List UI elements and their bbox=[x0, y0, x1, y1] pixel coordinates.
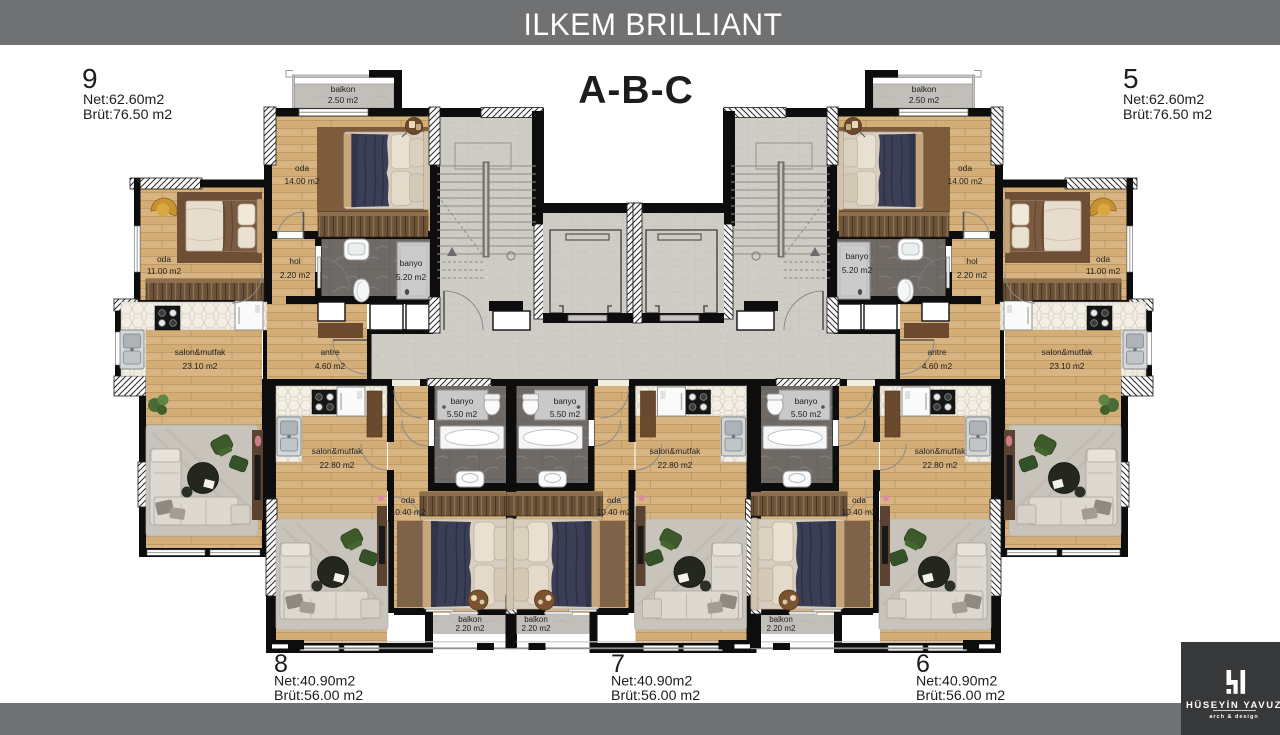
svg-text:oda: oda bbox=[1096, 254, 1110, 264]
svg-text:22.80 m2: 22.80 m2 bbox=[658, 460, 693, 470]
svg-text:balkon: balkon bbox=[524, 615, 548, 624]
svg-text:2.50 m2: 2.50 m2 bbox=[328, 95, 359, 105]
svg-text:Brüt:56.00 m2: Brüt:56.00 m2 bbox=[611, 688, 700, 704]
svg-text:antre: antre bbox=[927, 347, 946, 357]
svg-text:A-B-C: A-B-C bbox=[578, 69, 693, 112]
svg-text:2.20 m2: 2.20 m2 bbox=[456, 624, 485, 633]
svg-text:10.40 m2: 10.40 m2 bbox=[391, 507, 426, 517]
svg-text:balkon: balkon bbox=[458, 615, 482, 624]
svg-text:HÜSEYİN YAVUZ: HÜSEYİN YAVUZ bbox=[1186, 700, 1280, 711]
svg-text:oda: oda bbox=[607, 495, 621, 505]
svg-text:oda: oda bbox=[852, 495, 866, 505]
svg-text:Brüt:56.00 m2: Brüt:56.00 m2 bbox=[274, 688, 363, 704]
svg-text:hol: hol bbox=[966, 256, 977, 266]
svg-text:2.50 m2: 2.50 m2 bbox=[909, 95, 940, 105]
svg-text:hol: hol bbox=[289, 256, 300, 266]
svg-text:salon&mutfak: salon&mutfak bbox=[312, 446, 364, 456]
svg-text:Brüt:76.50 m2: Brüt:76.50 m2 bbox=[1123, 107, 1212, 123]
svg-text:23.10 m2: 23.10 m2 bbox=[1050, 361, 1085, 371]
svg-text:balkon: balkon bbox=[912, 84, 937, 94]
svg-text:banyo: banyo bbox=[554, 396, 577, 406]
svg-text:oda: oda bbox=[157, 254, 171, 264]
svg-text:banyo: banyo bbox=[451, 396, 474, 406]
svg-text:ILKEM BRILLIANT: ILKEM BRILLIANT bbox=[523, 6, 782, 42]
svg-text:2.20 m2: 2.20 m2 bbox=[957, 270, 988, 280]
svg-text:banyo: banyo bbox=[846, 251, 869, 261]
svg-text:5.50 m2: 5.50 m2 bbox=[550, 409, 581, 419]
svg-text:23.10 m2: 23.10 m2 bbox=[183, 361, 218, 371]
svg-text:banyo: banyo bbox=[400, 258, 423, 268]
svg-text:11.00 m2: 11.00 m2 bbox=[147, 266, 182, 276]
svg-text:5: 5 bbox=[1123, 63, 1139, 94]
svg-text:balkon: balkon bbox=[331, 84, 356, 94]
svg-text:4.60 m2: 4.60 m2 bbox=[315, 361, 346, 371]
svg-text:oda: oda bbox=[958, 163, 972, 173]
svg-text:salon&mutfak: salon&mutfak bbox=[915, 446, 967, 456]
svg-text:5.20 m2: 5.20 m2 bbox=[396, 272, 427, 282]
svg-text:10.40 m2: 10.40 m2 bbox=[597, 507, 632, 517]
svg-text:banyo: banyo bbox=[795, 396, 818, 406]
svg-text:5.20 m2: 5.20 m2 bbox=[842, 265, 873, 275]
svg-text:22.80 m2: 22.80 m2 bbox=[923, 460, 958, 470]
svg-text:Brüt:76.50 m2: Brüt:76.50 m2 bbox=[83, 107, 172, 123]
svg-text:salon&mutfak: salon&mutfak bbox=[650, 446, 702, 456]
svg-text:2.20 m2: 2.20 m2 bbox=[522, 624, 551, 633]
svg-text:10.40 m2: 10.40 m2 bbox=[842, 507, 877, 517]
svg-text:Net:62.60m2: Net:62.60m2 bbox=[83, 92, 164, 108]
svg-text:balkon: balkon bbox=[769, 615, 793, 624]
svg-text:oda: oda bbox=[401, 495, 415, 505]
svg-text:14.00 m2: 14.00 m2 bbox=[948, 176, 983, 186]
svg-text:Brüt:56.00 m2: Brüt:56.00 m2 bbox=[916, 688, 1005, 704]
svg-text:oda: oda bbox=[295, 163, 309, 173]
svg-text:9: 9 bbox=[82, 63, 98, 94]
svg-text:Net:62.60m2: Net:62.60m2 bbox=[1123, 92, 1204, 108]
svg-text:22.80 m2: 22.80 m2 bbox=[320, 460, 355, 470]
svg-text:2.20 m2: 2.20 m2 bbox=[280, 270, 311, 280]
svg-text:antre: antre bbox=[320, 347, 339, 357]
svg-text:11.00 m2: 11.00 m2 bbox=[1086, 266, 1121, 276]
svg-text:salon&mutfak: salon&mutfak bbox=[1042, 347, 1094, 357]
svg-text:2.20 m2: 2.20 m2 bbox=[767, 624, 796, 633]
svg-text:5.50 m2: 5.50 m2 bbox=[447, 409, 478, 419]
svg-text:4.60 m2: 4.60 m2 bbox=[922, 361, 953, 371]
svg-text:salon&mutfak: salon&mutfak bbox=[175, 347, 227, 357]
svg-text:arch & design: arch & design bbox=[1209, 714, 1258, 720]
svg-text:14.00 m2: 14.00 m2 bbox=[285, 176, 320, 186]
svg-text:5.50 m2: 5.50 m2 bbox=[791, 409, 822, 419]
